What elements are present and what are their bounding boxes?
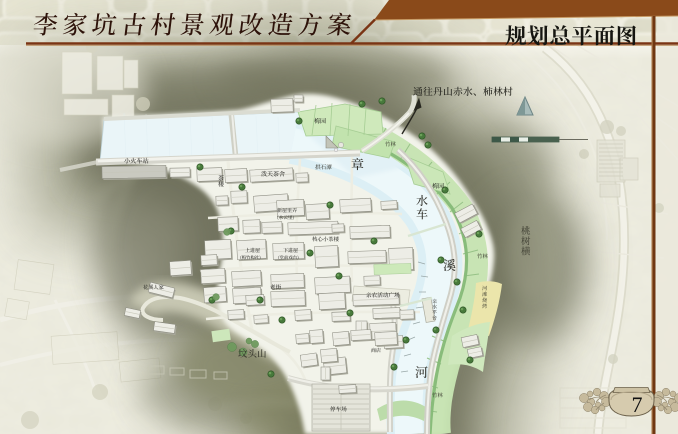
svg-text:7: 7: [632, 392, 643, 417]
